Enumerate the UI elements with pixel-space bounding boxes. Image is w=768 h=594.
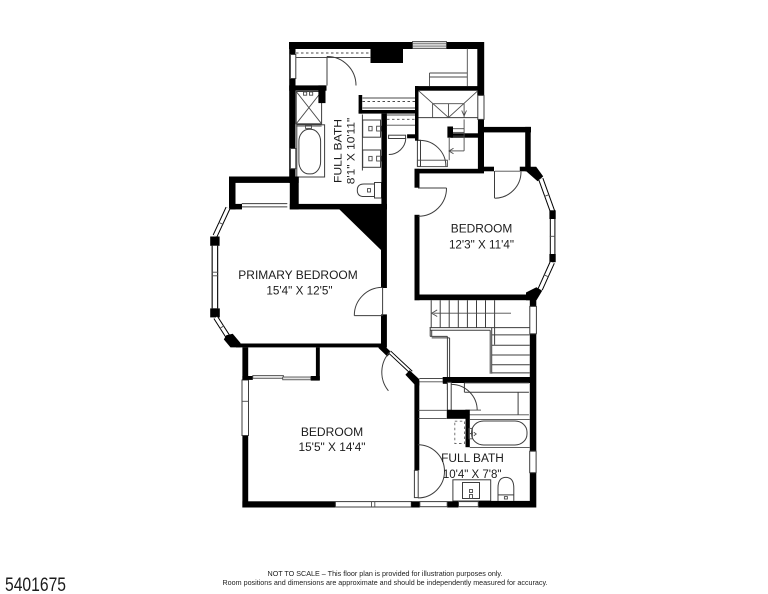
svg-text:BEDROOM: BEDROOM	[301, 425, 363, 439]
svg-text:BEDROOM: BEDROOM	[451, 221, 513, 235]
svg-text:PRIMARY BEDROOM: PRIMARY BEDROOM	[238, 268, 357, 282]
svg-text:10'4" X 7'8": 10'4" X 7'8"	[443, 469, 502, 481]
svg-text:12'3" X 11'4": 12'3" X 11'4"	[449, 237, 514, 251]
svg-text:FULL BATH: FULL BATH	[441, 453, 504, 465]
svg-text:Room positions and dimensions: Room positions and dimensions are approx…	[223, 578, 548, 587]
svg-text:NOT TO SCALE – This floor plan: NOT TO SCALE – This floor plan is provid…	[268, 569, 503, 578]
svg-text:8'1" X 10'11": 8'1" X 10'11"	[345, 118, 357, 185]
svg-text:15'5" X 14'4": 15'5" X 14'4"	[299, 440, 366, 454]
svg-text:FULL BATH: FULL BATH	[333, 119, 345, 183]
svg-text:5401675: 5401675	[5, 574, 66, 594]
svg-text:15'4" X 12'5": 15'4" X 12'5"	[266, 284, 332, 298]
